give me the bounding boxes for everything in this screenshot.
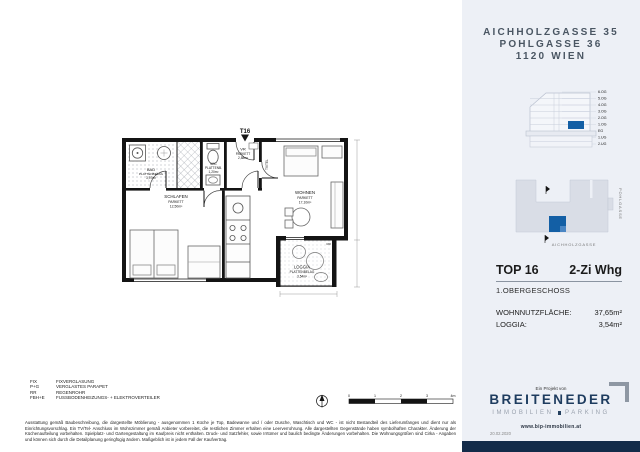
svg-text:5.OG: 5.OG bbox=[598, 97, 607, 101]
svg-text:3,54m²: 3,54m² bbox=[297, 275, 307, 279]
project-address: AICHHOLZGASSE 35 POHLGASSE 36 1120 WIEN bbox=[462, 27, 640, 63]
svg-text:1,20m²: 1,20m² bbox=[209, 170, 219, 174]
svg-text:PLATTENBELAG: PLATTENBELAG bbox=[290, 270, 315, 274]
unit-number: TOP 16 bbox=[496, 263, 539, 277]
svg-text:1: 1 bbox=[374, 394, 376, 398]
svg-text:1.UG: 1.UG bbox=[598, 136, 607, 140]
bedroom-furniture bbox=[130, 230, 220, 278]
svg-text:3: 3 bbox=[426, 394, 428, 398]
area-row: LOGGIA:3,54m² bbox=[496, 320, 622, 329]
svg-text:2.UG: 2.UG bbox=[598, 142, 607, 146]
svg-text:PARKETT: PARKETT bbox=[297, 196, 312, 200]
loggia-tile-floor bbox=[281, 241, 333, 286]
room-label-schlafen: SCHLAFEN bbox=[164, 194, 187, 199]
svg-text:0: 0 bbox=[348, 394, 350, 398]
info-panel: AICHHOLZGASSE 35 POHLGASSE 36 1120 WIEN bbox=[462, 0, 640, 452]
svg-text:12,50m²: 12,50m² bbox=[170, 205, 183, 209]
panel-footer-bar bbox=[462, 441, 640, 452]
site-plan: POHLGASSE AICHHOLZGASSE bbox=[502, 170, 640, 255]
svg-text:17,10m²: 17,10m² bbox=[299, 201, 312, 205]
svg-text:4m: 4m bbox=[451, 394, 456, 398]
entrance-arrow-icon bbox=[241, 135, 249, 142]
logo-subline: IMMOBILIEN PARKING bbox=[462, 410, 640, 416]
svg-text:PARKETT: PARKETT bbox=[168, 200, 183, 204]
room-label-wohnen: WOHNEN bbox=[295, 190, 315, 195]
highlighted-floor-unit bbox=[568, 121, 584, 129]
disclaimer-text: Ausstattung gemäß Baubeschreibung, die d… bbox=[25, 420, 456, 442]
svg-text:4.OG: 4.OG bbox=[598, 103, 607, 107]
address-line: POHLGASSE 36 bbox=[462, 39, 640, 51]
floorplan-sheet: T16 VR PARKETT 2,88m² WC PLATTENB. 1,20m… bbox=[0, 0, 640, 452]
svg-text:2,88m²: 2,88m² bbox=[238, 156, 248, 160]
tv-tel-annotation: TV/TEL bbox=[265, 159, 269, 170]
svg-text:2: 2 bbox=[400, 394, 402, 398]
room-label-vr: VR bbox=[240, 147, 246, 152]
svg-text:3,97m²: 3,97m² bbox=[146, 176, 156, 180]
logo-url: www.bip-immobilien.at bbox=[462, 424, 640, 430]
address-line: 1120 WIEN bbox=[462, 51, 640, 63]
svg-text:2.OG: 2.OG bbox=[598, 116, 607, 120]
divider bbox=[496, 281, 622, 282]
logo-square-icon bbox=[558, 411, 562, 415]
unit-floor: 1.OBERGESCHOSS bbox=[496, 286, 570, 295]
svg-text:6.OG: 6.OG bbox=[598, 90, 607, 94]
legend-row: FBH+EFUSSBODENHEIZUNGS- + ELEKTROVERTEIL… bbox=[30, 395, 160, 400]
svg-text:EG: EG bbox=[598, 129, 603, 133]
living-furniture bbox=[284, 146, 343, 228]
area-row: WOHNNUTZFLÄCHE:37,65m² bbox=[496, 308, 622, 317]
street-label-pohlgasse: POHLGASSE bbox=[618, 188, 623, 220]
fbh-box bbox=[249, 143, 258, 149]
room-label-loggia: LOGGIA bbox=[294, 265, 310, 270]
plan-date: 20.02.2020 bbox=[490, 431, 511, 436]
svg-text:3.OG: 3.OG bbox=[598, 110, 607, 114]
svg-text:1.OG: 1.OG bbox=[598, 123, 607, 127]
legend: FIXFIXVERGLASUNG P+GVERGLASTES PARAPET R… bbox=[30, 379, 160, 401]
floor-labels: 6.OG 5.OG 4.OG 3.OG 2.OG 1.OG EG 1.UG 2.… bbox=[598, 90, 607, 146]
unit-heading: TOP 16 2-Zi Whg bbox=[496, 263, 622, 277]
unit-type: 2-Zi Whg bbox=[569, 263, 622, 277]
street-label-aichholzgasse: AICHHOLZGASSE bbox=[552, 242, 596, 247]
scale-bar: 0 1 2 3 4m bbox=[348, 394, 456, 404]
kitchen-fixtures bbox=[226, 196, 250, 278]
entrance-label: T16 bbox=[240, 129, 251, 135]
address-line: AICHHOLZGASSE 35 bbox=[462, 27, 640, 39]
north-arrow-icon bbox=[317, 395, 328, 408]
logo-wordmark: BREITENEDER bbox=[462, 392, 640, 407]
